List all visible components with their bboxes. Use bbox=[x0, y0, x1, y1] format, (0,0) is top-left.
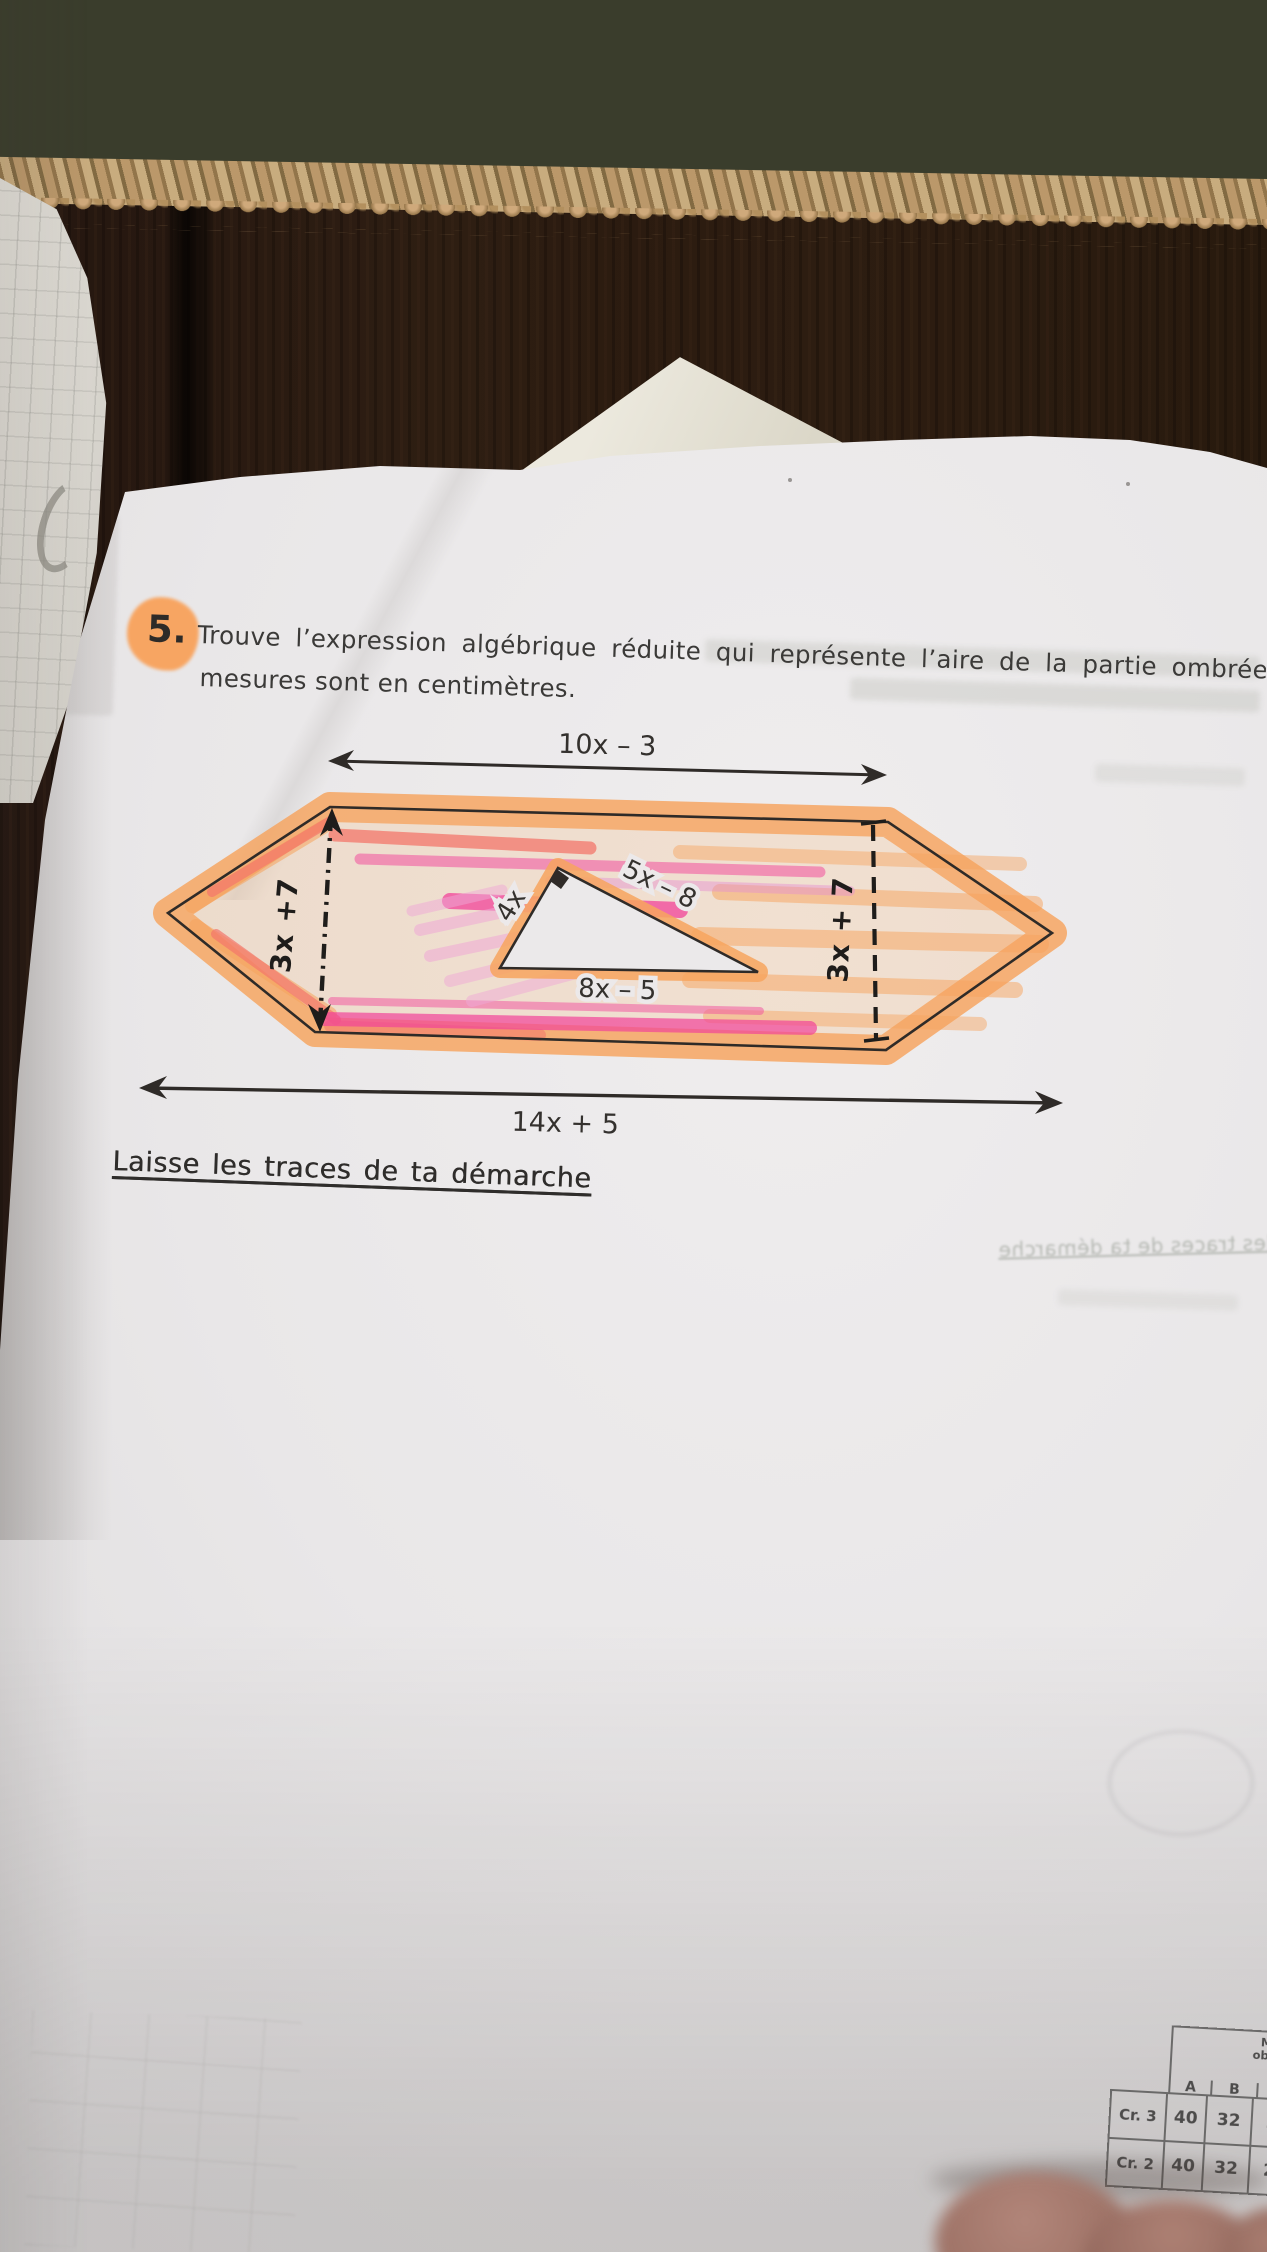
rubric-cell: 24 bbox=[1249, 2097, 1267, 2150]
rubric-row-label: Cr. 3 bbox=[1107, 2089, 1168, 2142]
rubric-cell: 32 bbox=[1203, 2094, 1254, 2147]
problem-number: 5. bbox=[146, 607, 187, 651]
label-bottom-width: 14x + 5 bbox=[511, 1107, 619, 1141]
bleedthrough-smudge bbox=[1058, 1289, 1238, 1311]
gray-arc-mark bbox=[26, 473, 103, 580]
woven-rug bbox=[0, 0, 1267, 226]
dust-speck bbox=[788, 478, 792, 482]
bleedthrough-mirrored-text: les traces de ta démarche bbox=[862, 1231, 1267, 1266]
label-right-height: 3x + 7 bbox=[821, 876, 860, 984]
bleedthrough-smudge bbox=[850, 678, 1260, 713]
photo-scene: les traces de ta démarche 5. Trouve l’ex… bbox=[0, 0, 1267, 2252]
dust-speck bbox=[1126, 482, 1130, 486]
figure-diagram: 10x – 3 14x + 5 3x +7 3x + 7 4x 5x – 8 8… bbox=[120, 730, 1130, 1160]
rubric-cell: 40 bbox=[1163, 2092, 1208, 2144]
label-top-width: 10x – 3 bbox=[558, 730, 657, 762]
bleedthrough-handwriting bbox=[1108, 1730, 1254, 1836]
label-triangle-base: 8x – 5 bbox=[578, 974, 657, 1007]
bleedthrough-grid bbox=[24, 2010, 302, 2252]
